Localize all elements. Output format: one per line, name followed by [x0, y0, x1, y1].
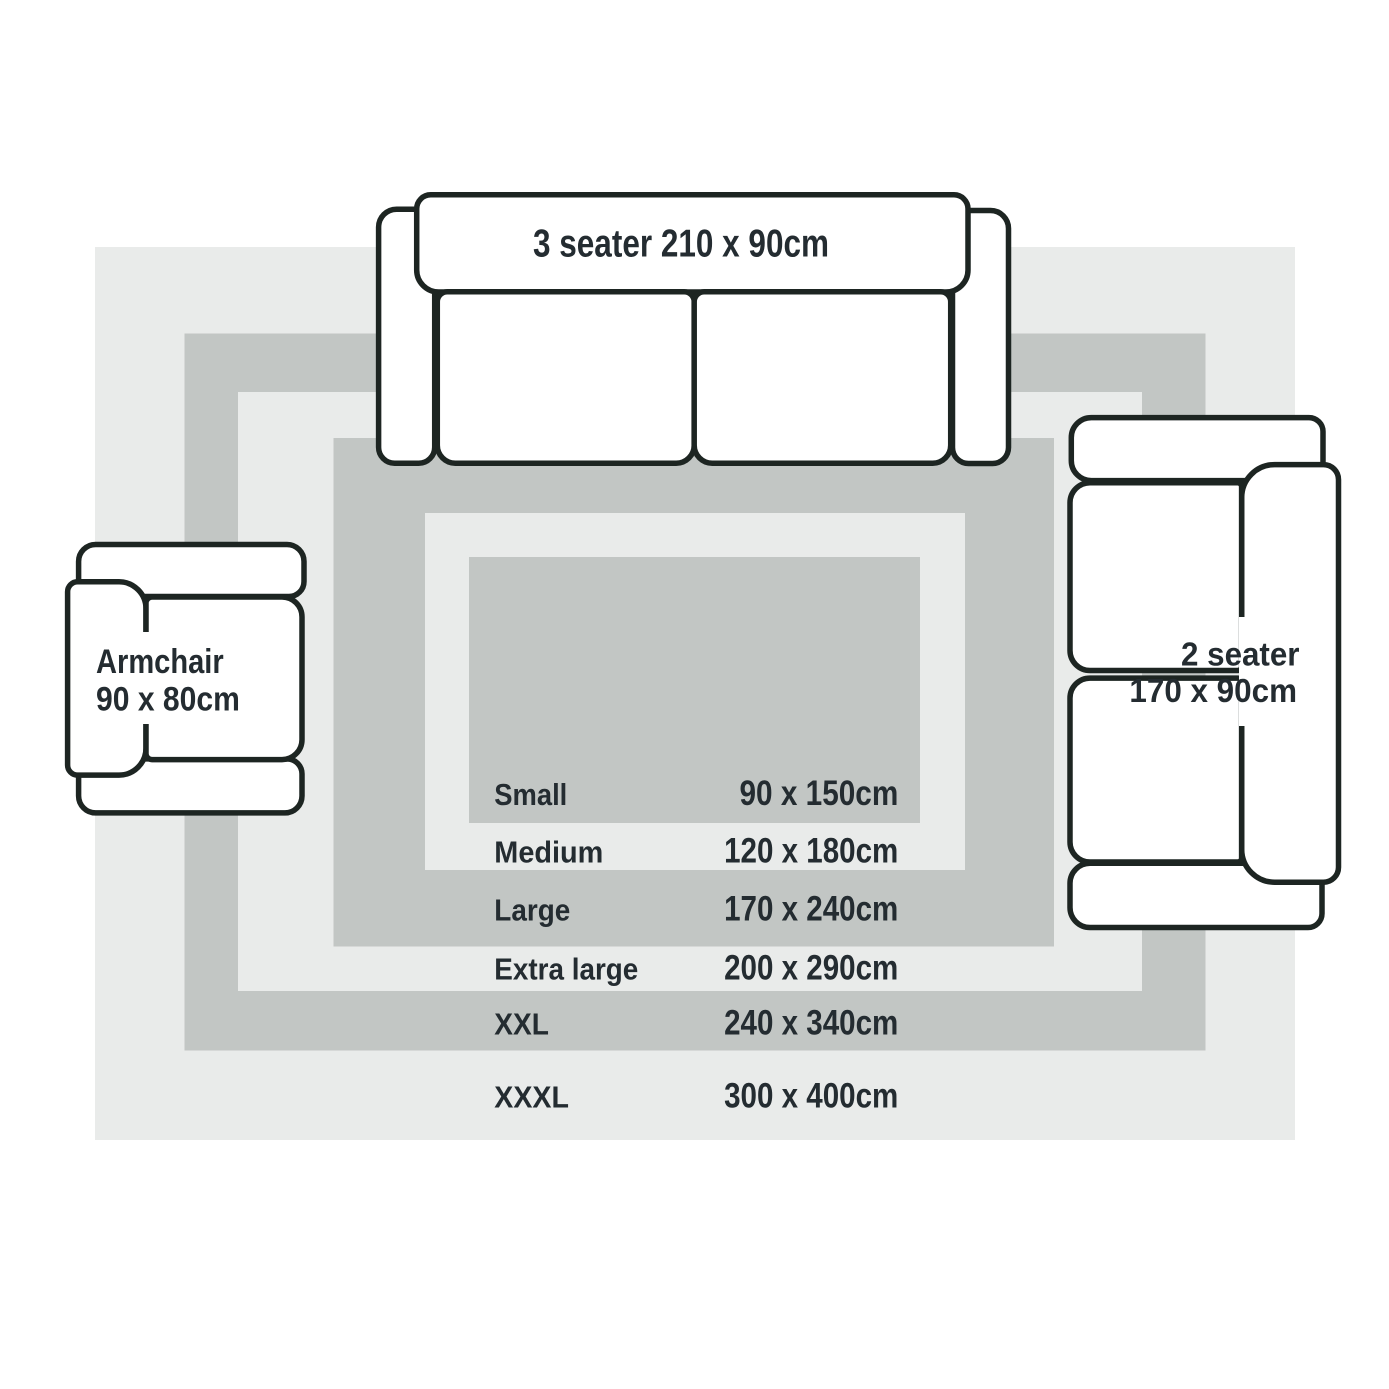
svg-text:Medium: Medium [494, 834, 603, 869]
svg-text:240 x 340cm: 240 x 340cm [724, 1004, 898, 1043]
svg-text:Small: Small [494, 777, 567, 812]
svg-text:170 x 240cm: 170 x 240cm [724, 890, 898, 929]
svg-text:3 seater 210 x 90cm: 3 seater 210 x 90cm [533, 222, 829, 265]
svg-text:Armchair: Armchair [96, 643, 224, 681]
svg-text:Large: Large [494, 893, 570, 928]
svg-text:120 x 180cm: 120 x 180cm [724, 831, 898, 870]
svg-text:XXL: XXL [494, 1007, 549, 1042]
svg-text:90 x 80cm: 90 x 80cm [96, 680, 240, 718]
svg-text:2 seater: 2 seater [1181, 636, 1300, 673]
svg-text:Extra large: Extra large [494, 952, 638, 987]
svg-text:170 x 90cm: 170 x 90cm [1129, 672, 1297, 709]
svg-text:200 x 290cm: 200 x 290cm [724, 949, 898, 988]
svg-text:90 x 150cm: 90 x 150cm [740, 774, 899, 813]
svg-text:XXXL: XXXL [494, 1080, 569, 1115]
svg-text:300 x 400cm: 300 x 400cm [724, 1077, 898, 1116]
